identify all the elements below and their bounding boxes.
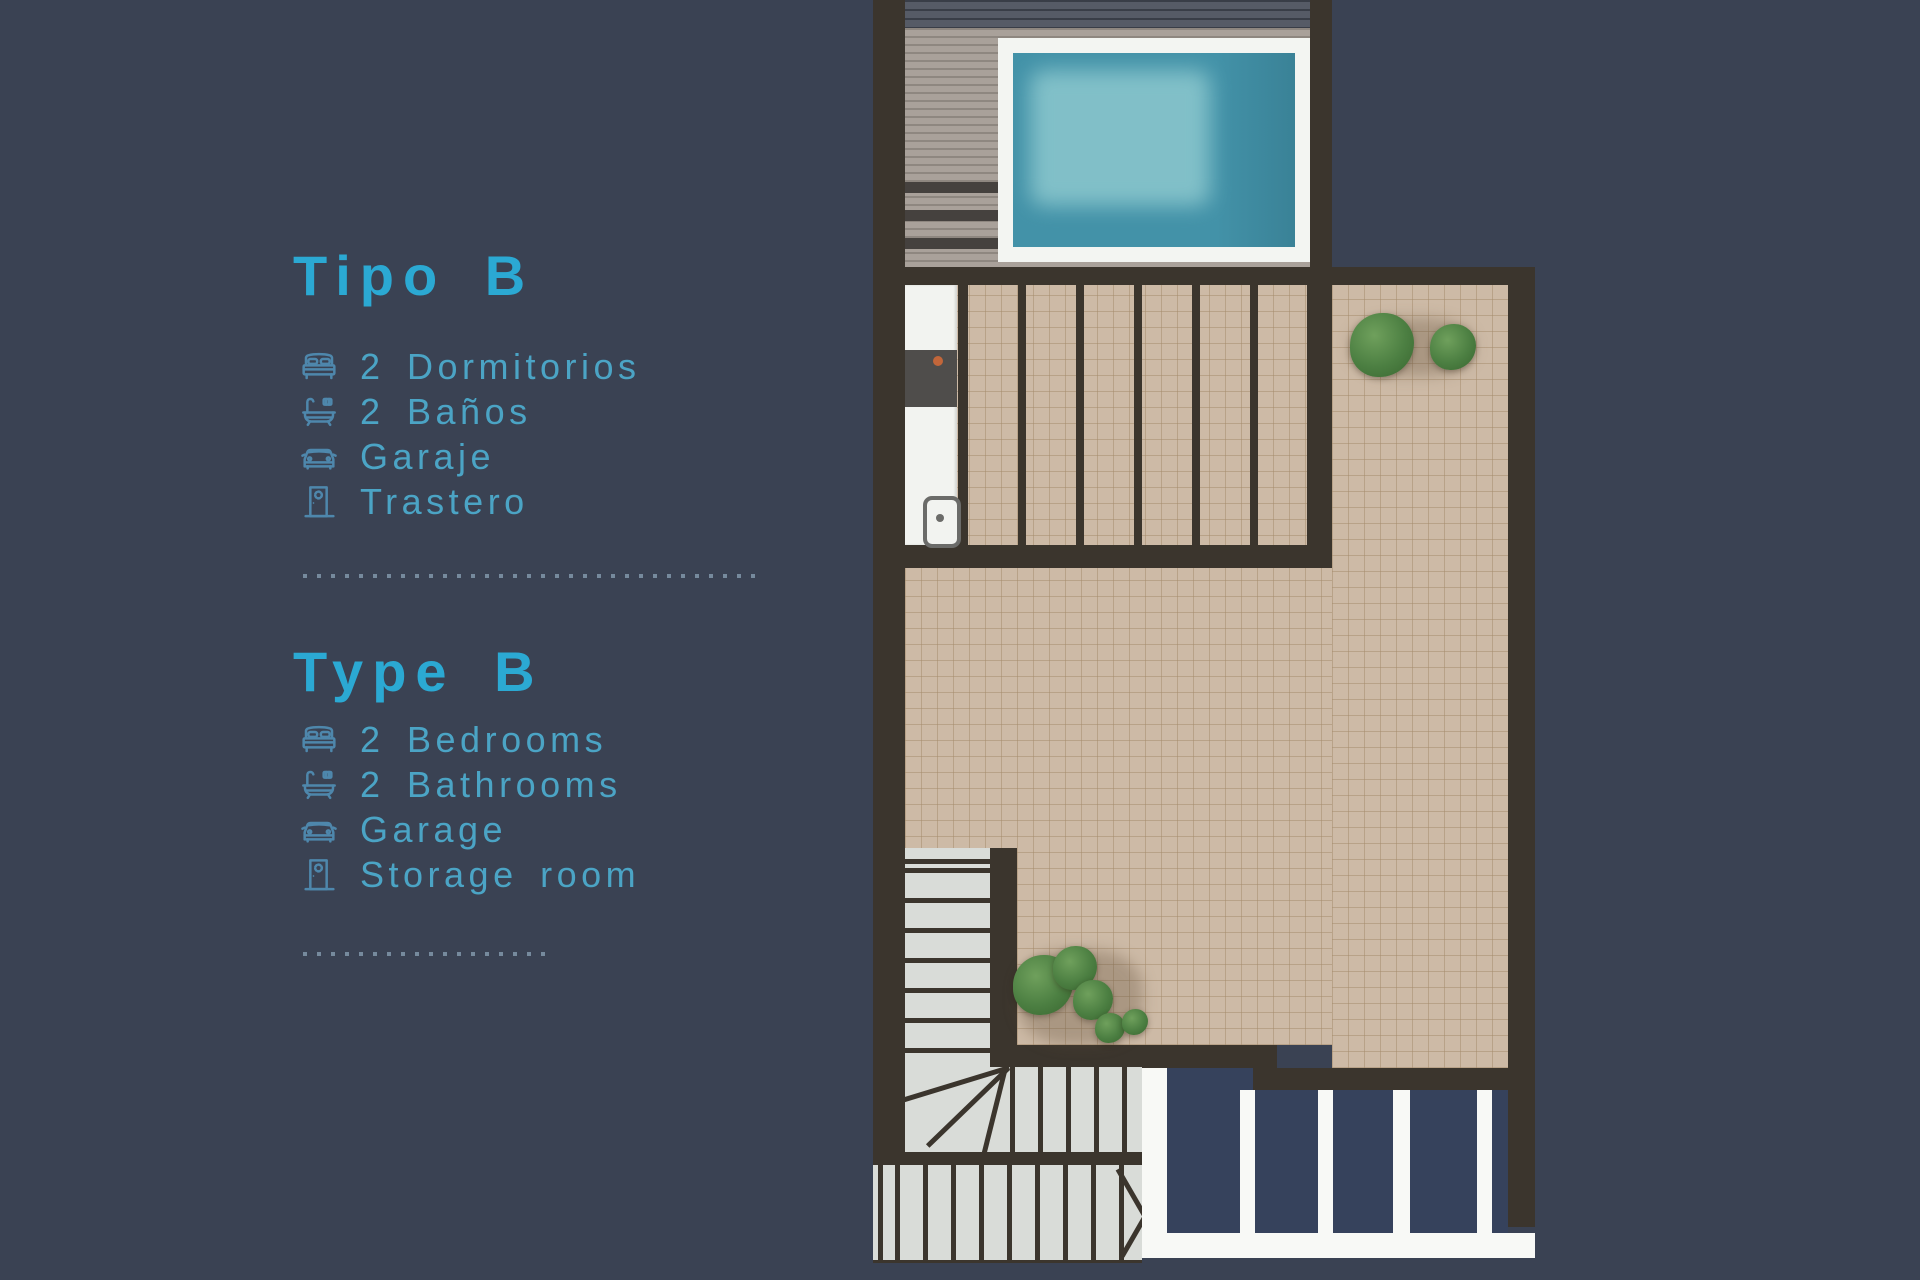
door-icon <box>296 482 342 522</box>
terrace-north-wall <box>873 267 1535 285</box>
stair-side-wall <box>990 848 1017 1068</box>
feature-bedrooms: 2 Bedrooms <box>296 717 640 762</box>
deck-step <box>905 182 998 193</box>
lower-level-mullion <box>1240 1090 1255 1233</box>
roof-edge-band <box>905 0 1332 28</box>
plan-left-wall <box>873 0 905 1165</box>
lower-level-wall-white <box>1142 1068 1167 1258</box>
feature-garage: Garaje <box>296 434 641 479</box>
bed-icon <box>296 347 342 387</box>
stairs-horizontal-run <box>1010 1067 1142 1152</box>
deck-right-wall <box>1310 0 1332 290</box>
pool-water-highlight <box>1030 70 1210 206</box>
feature-label: 2 Bathrooms <box>360 764 622 806</box>
bed-icon <box>296 720 342 760</box>
bath-icon <box>296 392 342 432</box>
pergola-bottom-wall <box>873 545 1332 568</box>
feature-storage: Storage room <box>296 852 640 897</box>
pergola-slats <box>957 285 1307 545</box>
grill-knob <box>933 356 943 366</box>
stairs-winder-landing <box>905 1067 1010 1152</box>
sink-drain <box>936 514 944 522</box>
door-icon <box>296 855 342 895</box>
feature-bedrooms: 2 Dormitorios <box>296 344 641 389</box>
deck-step <box>905 238 998 249</box>
lower-level-roof <box>1167 1068 1508 1233</box>
car-icon <box>296 437 342 477</box>
kitchen-grill <box>905 350 957 407</box>
lower-level-mullion <box>1393 1090 1410 1233</box>
lower-level-mullion <box>1477 1090 1492 1233</box>
plan-right-wall <box>1508 270 1535 1227</box>
terrace-south-wall <box>990 1045 1277 1068</box>
terrace-south-wall-right <box>1253 1068 1535 1090</box>
feature-label: Trastero <box>360 481 529 523</box>
deck-step <box>905 210 998 221</box>
feature-bathrooms: 2 Bathrooms <box>296 762 640 807</box>
lower-level-bottom-band <box>1142 1233 1535 1258</box>
pergola-right-wall <box>1307 285 1332 568</box>
brochure-page: Tipo B 2 Dormitorios 2 Baños Garaje Tras… <box>0 0 1920 1280</box>
feature-list-spanish: 2 Dormitorios 2 Baños Garaje Trastero <box>296 344 641 524</box>
kitchen-sink <box>923 496 961 548</box>
feature-list-english: 2 Bedrooms 2 Bathrooms Garage Storage ro… <box>296 717 640 897</box>
feature-label: 2 Baños <box>360 391 532 433</box>
floor-plan <box>873 0 1537 1262</box>
lower-level-mullion <box>1318 1090 1333 1233</box>
feature-garage: Garage <box>296 807 640 852</box>
feature-label: 2 Dormitorios <box>360 346 641 388</box>
feature-label: Garage <box>360 809 507 851</box>
feature-storage: Trastero <box>296 479 641 524</box>
feature-label: 2 Bedrooms <box>360 719 607 761</box>
section-heading-english: Type B <box>293 644 544 700</box>
dotted-divider <box>303 952 549 956</box>
stairs-upper-flight <box>905 848 990 1067</box>
dotted-divider <box>303 574 759 578</box>
car-icon <box>296 810 342 850</box>
feature-label: Garaje <box>360 436 495 478</box>
feature-bathrooms: 2 Baños <box>296 389 641 434</box>
pool-surround <box>998 38 1310 262</box>
feature-label: Storage room <box>360 854 640 896</box>
terrace-tiles-right <box>1332 285 1508 1068</box>
bath-icon <box>296 765 342 805</box>
pool-water <box>1013 53 1295 247</box>
stairs-lower-flight <box>873 1165 1142 1263</box>
section-heading-spanish: Tipo B <box>293 248 534 304</box>
stair-divider-wall <box>873 1152 1142 1165</box>
